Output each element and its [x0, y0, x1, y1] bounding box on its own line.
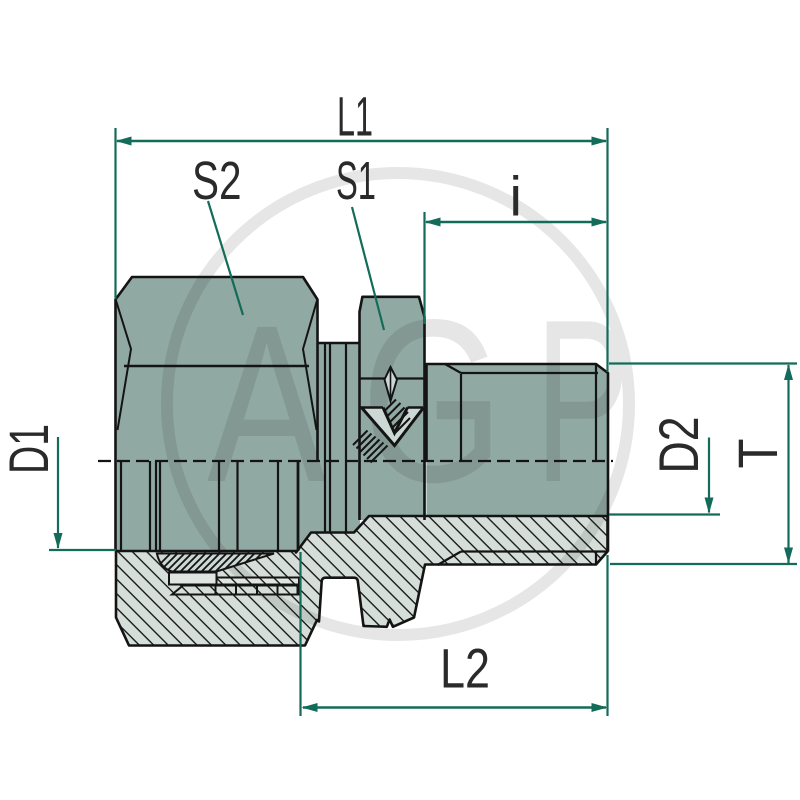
svg-text:D1: D1: [0, 424, 60, 474]
svg-text:P: P: [535, 272, 630, 531]
svg-text:L1: L1: [337, 85, 373, 148]
svg-text:G: G: [361, 272, 504, 531]
svg-text:i: i: [510, 165, 522, 228]
svg-text:A: A: [207, 279, 326, 529]
svg-text:L2: L2: [440, 637, 490, 700]
svg-text:D2: D2: [647, 417, 710, 474]
svg-text:S1: S1: [336, 151, 376, 211]
svg-text:T: T: [726, 439, 789, 469]
svg-text:S2: S2: [192, 151, 242, 211]
